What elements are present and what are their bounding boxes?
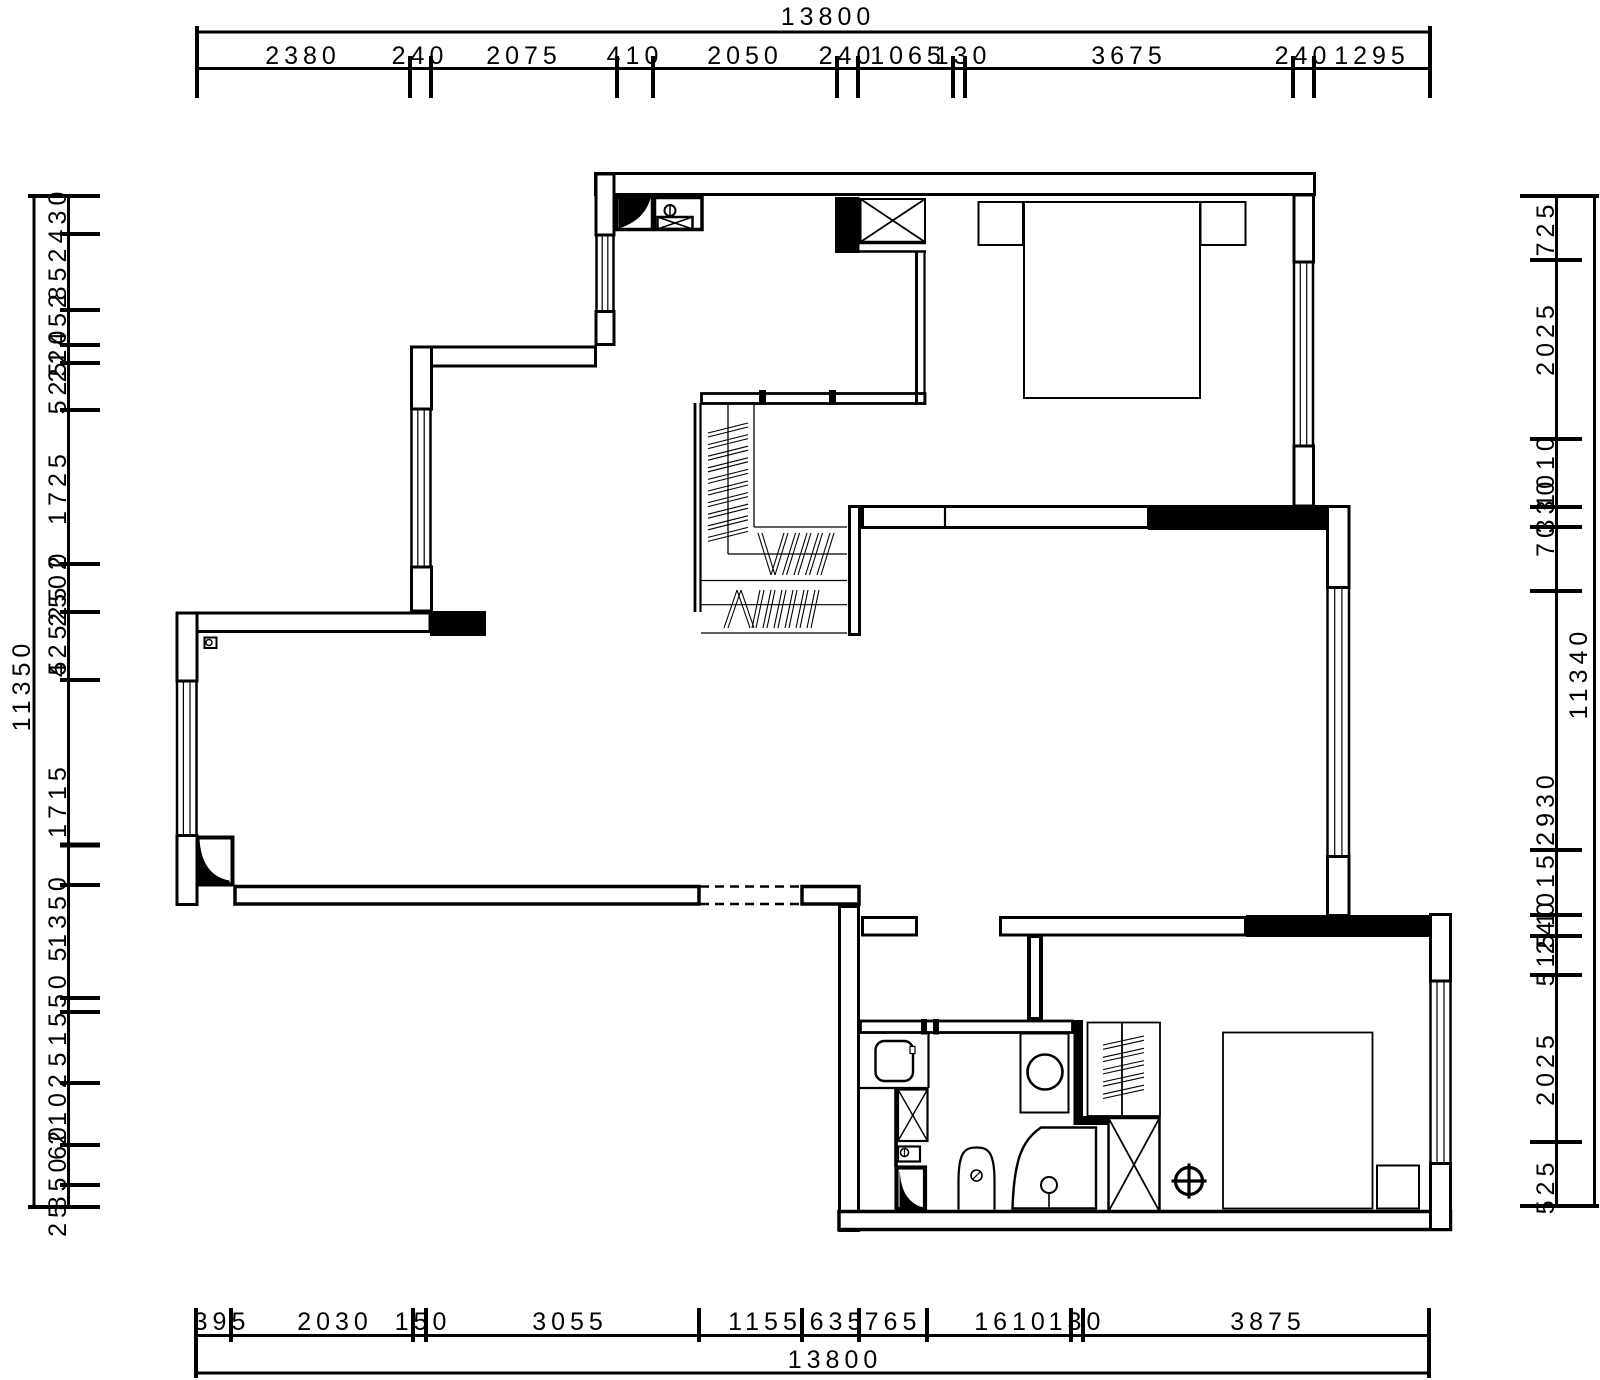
svg-text:240: 240: [1275, 42, 1332, 70]
svg-text:725: 725: [1532, 200, 1560, 257]
svg-text:25: 25: [44, 1199, 72, 1237]
svg-text:150: 150: [395, 1308, 452, 1336]
svg-text:2025: 2025: [1532, 300, 1560, 376]
svg-text:5: 5: [44, 1048, 72, 1067]
svg-text:11340: 11340: [1565, 627, 1593, 720]
svg-text:1350: 1350: [44, 872, 72, 948]
svg-text:2380: 2380: [265, 42, 341, 70]
svg-text:1725: 1725: [44, 449, 72, 525]
svg-text:395: 395: [194, 1308, 251, 1336]
svg-text:3055: 3055: [532, 1308, 608, 1336]
svg-text:2075: 2075: [486, 42, 562, 70]
svg-text:1295: 1295: [1334, 42, 1410, 70]
svg-text:410: 410: [607, 42, 664, 70]
svg-text:1610: 1610: [974, 1308, 1050, 1336]
svg-text:3875: 3875: [1230, 1308, 1306, 1336]
svg-text:13800: 13800: [781, 3, 876, 31]
svg-text:5: 5: [44, 943, 72, 962]
svg-text:1550: 1550: [44, 970, 72, 1046]
svg-text:515: 515: [1532, 930, 1560, 987]
svg-text:70: 70: [1532, 519, 1560, 557]
svg-text:1155: 1155: [728, 1308, 802, 1336]
svg-text:2030: 2030: [297, 1308, 373, 1336]
svg-text:130: 130: [935, 42, 992, 70]
svg-text:11350: 11350: [8, 639, 36, 732]
svg-text:240: 240: [392, 42, 449, 70]
svg-text:130: 130: [1049, 1308, 1106, 1336]
svg-text:525: 525: [44, 358, 72, 415]
svg-text:525: 525: [1532, 1158, 1560, 1215]
svg-text:2930: 2930: [1532, 770, 1560, 846]
svg-text:430: 430: [44, 187, 72, 244]
svg-text:240: 240: [819, 42, 876, 70]
svg-text:2025: 2025: [1532, 1030, 1560, 1106]
svg-text:1715: 1715: [44, 762, 72, 838]
svg-text:5: 5: [44, 657, 72, 676]
svg-text:13800: 13800: [788, 1346, 883, 1374]
svg-text:635: 635: [810, 1308, 867, 1336]
svg-text:2050: 2050: [707, 42, 783, 70]
svg-text:3675: 3675: [1091, 42, 1167, 70]
svg-text:765: 765: [865, 1308, 922, 1336]
